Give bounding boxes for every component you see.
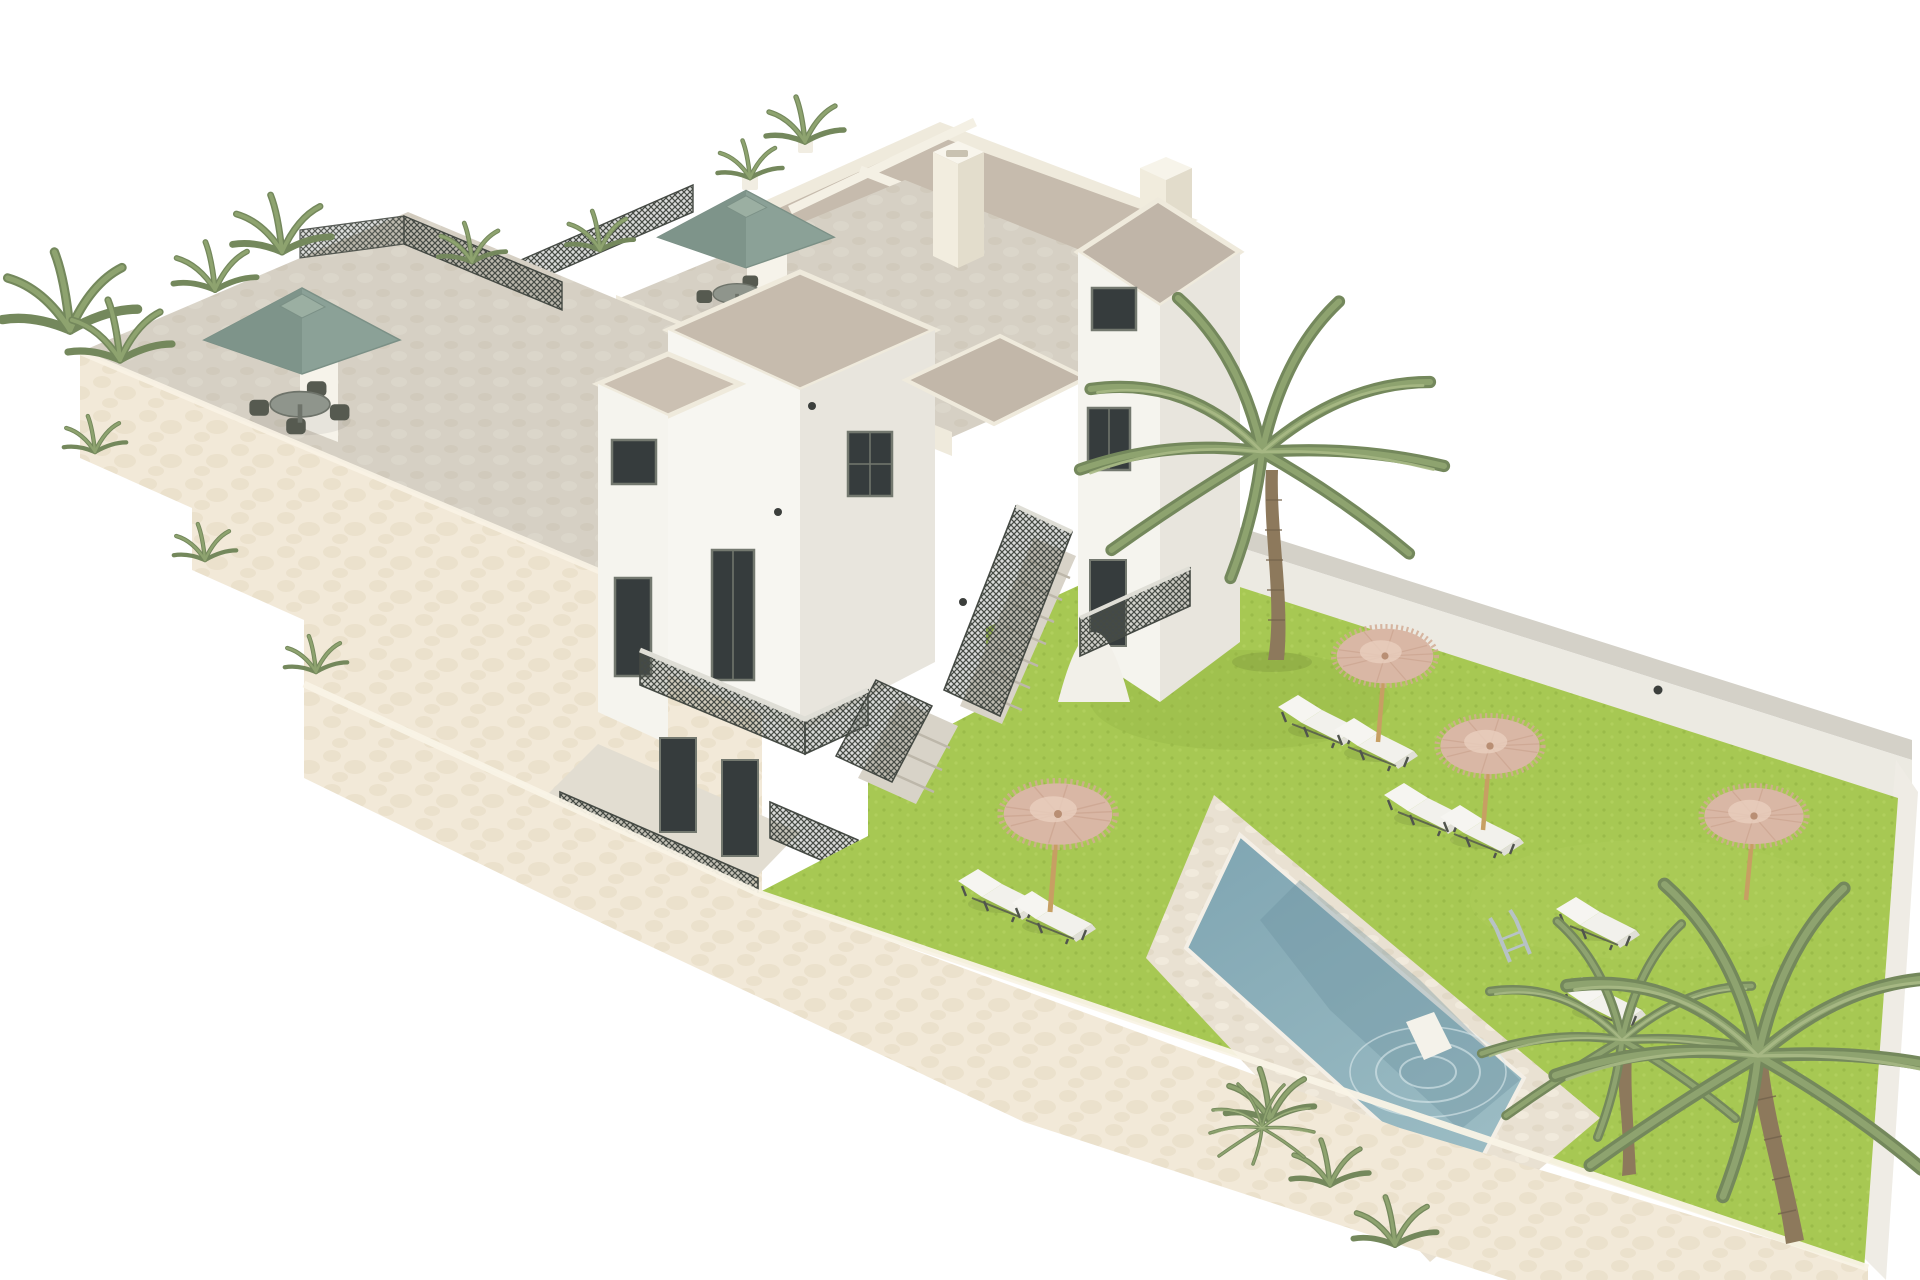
architectural-render: [0, 0, 1920, 1280]
wall-sconce-icon: [1654, 686, 1663, 695]
slit-window-icon: [1092, 288, 1136, 330]
building-central-tower: [668, 272, 935, 732]
slit-window-icon: [612, 440, 656, 484]
wall-sconce-icon: [774, 508, 782, 516]
window-icon: [848, 432, 892, 496]
chimney-1-icon: [933, 141, 984, 268]
wall-sconce-icon: [808, 402, 816, 410]
door-icon: [660, 738, 696, 832]
render-canvas: [0, 0, 1920, 1280]
door-icon: [722, 760, 758, 856]
wall-sconce-icon: [959, 598, 967, 606]
